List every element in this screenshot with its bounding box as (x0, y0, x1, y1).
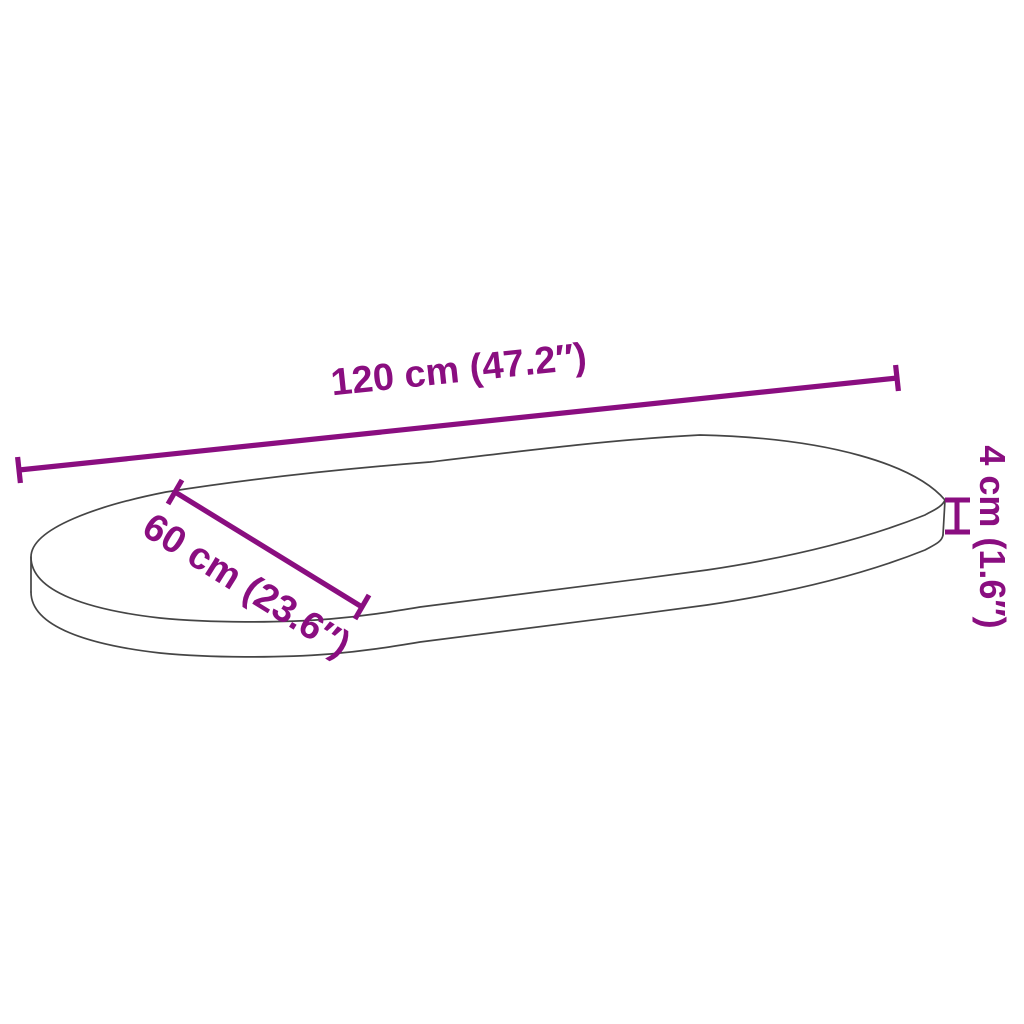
product-dimension-image: 120 cm (47.2″) 60 cm (23.6″) 4 cm (1.6″) (0, 0, 1024, 1024)
length-dimension-tick-right (896, 365, 899, 391)
tabletop-right-edge (943, 500, 945, 535)
tabletop-dimension-diagram: 120 cm (47.2″) 60 cm (23.6″) 4 cm (1.6″) (0, 0, 1024, 1024)
length-dimension-label: 120 cm (47.2″) (329, 336, 589, 405)
thickness-dimension: 4 cm (1.6″) (945, 445, 1013, 628)
length-dimension-tick-left (18, 457, 21, 483)
thickness-dimension-label: 4 cm (1.6″) (972, 445, 1013, 628)
